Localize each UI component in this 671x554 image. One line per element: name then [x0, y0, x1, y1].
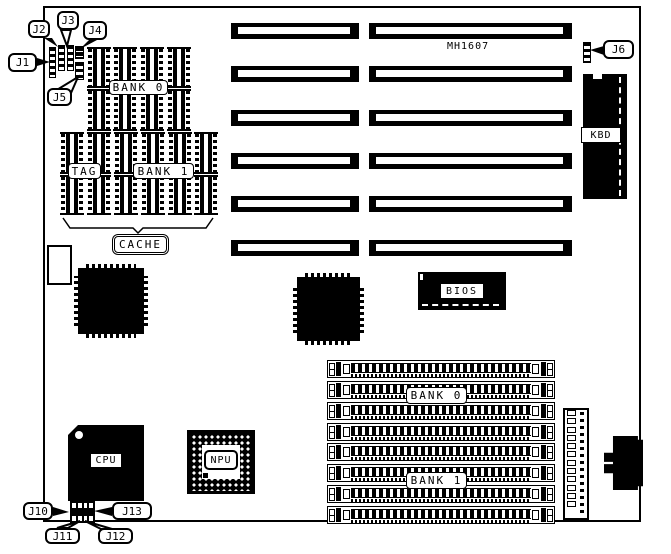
jumper-cell — [78, 510, 82, 515]
npu-pin1-mark — [203, 473, 208, 478]
jumper-block-j1 — [49, 47, 56, 78]
power-header-pin — [567, 451, 576, 457]
jumper-cell — [72, 510, 76, 515]
callout-j4: J4 — [83, 21, 107, 40]
callout-j1: J1 — [8, 53, 37, 72]
jumper-cell — [72, 503, 76, 508]
power-header-pin — [567, 418, 576, 424]
simm-bank0-label: BANK 0 — [406, 387, 467, 404]
jumper-cell — [84, 516, 88, 521]
power-header-pin — [567, 427, 576, 433]
callout-j12: J12 — [98, 528, 133, 544]
simm-bank1-label: BANK 1 — [406, 472, 467, 489]
bios-label: BIOS — [441, 284, 483, 298]
cpu-pin1-dot — [75, 431, 83, 439]
simm-socket — [327, 360, 555, 378]
keyboard-connector: KBD — [583, 74, 627, 199]
power-header-pin — [567, 443, 576, 449]
jumper-cell — [84, 510, 88, 515]
callout-j3: J3 — [57, 11, 79, 30]
kbd-label: KBD — [581, 127, 621, 143]
power-header-pin — [567, 485, 576, 491]
dip-bank1-label: BANK 1 — [133, 163, 194, 179]
power-header — [563, 408, 589, 520]
jumper-block-j6 — [583, 42, 591, 63]
power-header-pin — [567, 435, 576, 441]
callout-j6: J6 — [603, 40, 634, 59]
simm-socket — [327, 506, 555, 524]
jumper-cell — [78, 516, 82, 521]
silkscreen-model-text: MH1607 — [447, 41, 489, 52]
jumper-cell — [84, 503, 88, 508]
simm-socket — [327, 423, 555, 441]
jumper-block-j3 — [67, 45, 74, 71]
jumper-cell — [78, 503, 82, 508]
empty-socket — [47, 245, 72, 285]
power-header-pin — [567, 460, 576, 466]
jumper-cell — [89, 503, 93, 508]
callout-j5: J5 — [47, 88, 72, 106]
npu-socket: NPU — [187, 430, 255, 494]
simm-socket — [327, 443, 555, 461]
callout-j11: J11 — [45, 528, 80, 544]
callout-j10: J10 — [23, 502, 53, 520]
chipset-chip-2 — [297, 277, 360, 341]
cpu-chip: CPU — [68, 425, 144, 501]
dip-bank0-label: BANK 0 — [109, 80, 168, 95]
npu-label: NPU — [204, 450, 238, 470]
jumper-cell — [72, 516, 76, 521]
power-header-pin — [567, 410, 576, 416]
jumper-block-j5 — [75, 62, 84, 80]
jumper-block-j10-j13 — [70, 501, 95, 523]
power-header-pin — [567, 493, 576, 499]
callout-j2: J2 — [28, 20, 50, 38]
power-header-pin — [567, 501, 576, 507]
chipset-chip-1 — [78, 268, 144, 334]
jumper-block-j2 — [58, 45, 65, 71]
power-header-pin — [567, 468, 576, 474]
jumper-cell — [89, 510, 93, 515]
cache-label: CACHE — [114, 236, 167, 253]
motherboard-diagram: MH1607 BANK 0 TAG BANK 1 CACHE BIOS KBD … — [0, 0, 671, 554]
simm-socket — [327, 402, 555, 420]
bios-chip: BIOS — [418, 272, 506, 310]
power-header-pin — [567, 476, 576, 482]
jumper-block-j4 — [75, 46, 84, 59]
jumper-cell — [89, 516, 93, 521]
cpu-label: CPU — [90, 453, 122, 468]
tag-label: TAG — [68, 163, 101, 179]
callout-j13: J13 — [112, 502, 152, 520]
